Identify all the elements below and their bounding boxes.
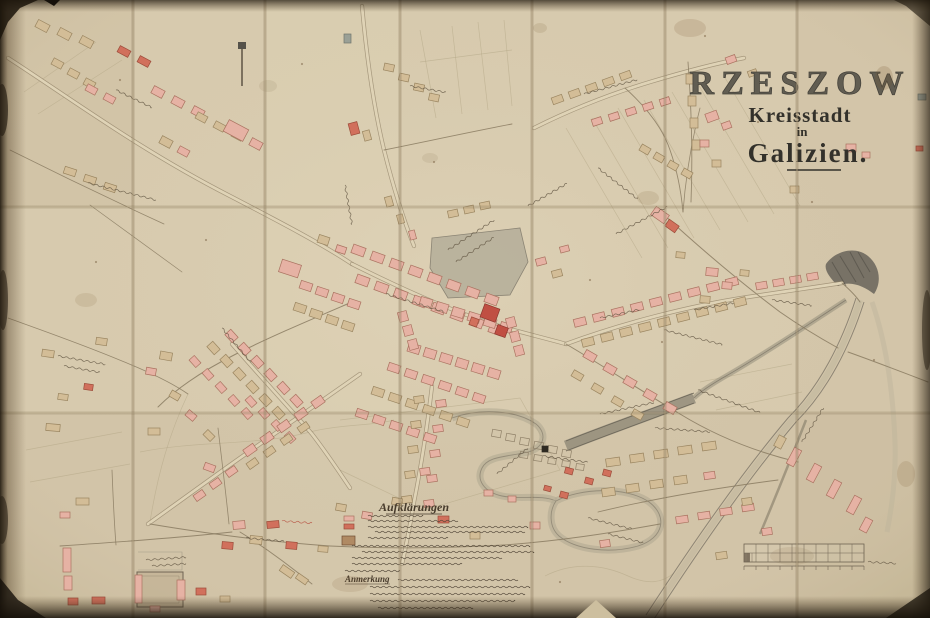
building: [411, 420, 422, 428]
cemetery-field: [430, 228, 528, 298]
building: [159, 351, 172, 361]
legend-swatch: [342, 536, 355, 545]
building: [716, 551, 728, 559]
stain: [637, 191, 659, 205]
stain: [75, 293, 97, 307]
building: [96, 337, 108, 345]
building: [650, 479, 664, 489]
building: [76, 498, 89, 505]
building: [427, 474, 438, 482]
building: [762, 527, 773, 535]
building: [676, 252, 685, 259]
building: [678, 445, 693, 455]
stain: [875, 66, 893, 90]
building: [233, 520, 246, 529]
building: [722, 282, 733, 290]
building: [335, 503, 346, 512]
building: [676, 515, 689, 524]
building: [542, 446, 548, 452]
building: [755, 281, 767, 290]
building: [60, 512, 70, 518]
building: [698, 511, 711, 520]
building: [436, 399, 447, 407]
building: [318, 546, 328, 553]
speck: [559, 581, 561, 583]
legend-header: Aufklärungen: [378, 500, 449, 514]
stain: [770, 547, 814, 565]
stain: [332, 576, 368, 592]
stain: [674, 19, 706, 37]
building: [712, 160, 721, 167]
speck: [95, 261, 97, 263]
building: [626, 483, 640, 493]
speck: [301, 63, 303, 65]
building: [740, 270, 749, 277]
building: [700, 140, 709, 147]
speck: [589, 279, 591, 281]
building: [692, 140, 700, 150]
building: [42, 349, 55, 358]
building: [674, 475, 688, 485]
speck: [433, 161, 435, 163]
speck: [757, 121, 759, 123]
building: [706, 267, 719, 276]
building: [720, 507, 733, 516]
building: [602, 487, 616, 497]
building: [690, 118, 698, 128]
speck: [205, 239, 207, 241]
building: [420, 467, 431, 475]
speck: [873, 359, 875, 361]
building: [630, 453, 645, 463]
building: [405, 470, 416, 478]
building: [196, 588, 206, 595]
building: [414, 395, 425, 403]
building: [46, 423, 61, 431]
building: [806, 272, 818, 281]
building: [438, 516, 449, 523]
building: [222, 542, 234, 550]
stain: [259, 80, 277, 92]
building: [58, 393, 69, 400]
building: [408, 445, 419, 453]
building: [606, 457, 621, 467]
building: [250, 535, 263, 544]
map-title-sub3: Galizien.: [748, 138, 869, 168]
building: [742, 497, 753, 505]
legend-swatch: [344, 516, 354, 521]
building: [508, 496, 516, 502]
building: [148, 428, 160, 435]
building: [433, 424, 444, 432]
stain: [422, 153, 438, 163]
speck: [119, 79, 121, 81]
building: [267, 520, 280, 528]
building: [772, 278, 784, 287]
building: [63, 548, 71, 572]
building: [704, 471, 716, 479]
building: [430, 449, 441, 457]
stain: [533, 23, 547, 33]
building: [145, 367, 156, 376]
building: [702, 441, 717, 451]
building: [600, 539, 611, 547]
building: [484, 490, 493, 496]
legend-swatch: [344, 524, 354, 529]
building: [64, 576, 72, 590]
scale-bar-filled-cell: [744, 553, 750, 562]
speck: [704, 35, 706, 37]
building: [84, 383, 94, 390]
building: [344, 34, 351, 43]
map-sheet: Aufklärungen Anmerkung RZESZOW Kreisstad…: [0, 0, 930, 618]
building: [700, 296, 711, 304]
building: [286, 542, 298, 550]
speck: [661, 341, 663, 343]
speck: [811, 201, 813, 203]
